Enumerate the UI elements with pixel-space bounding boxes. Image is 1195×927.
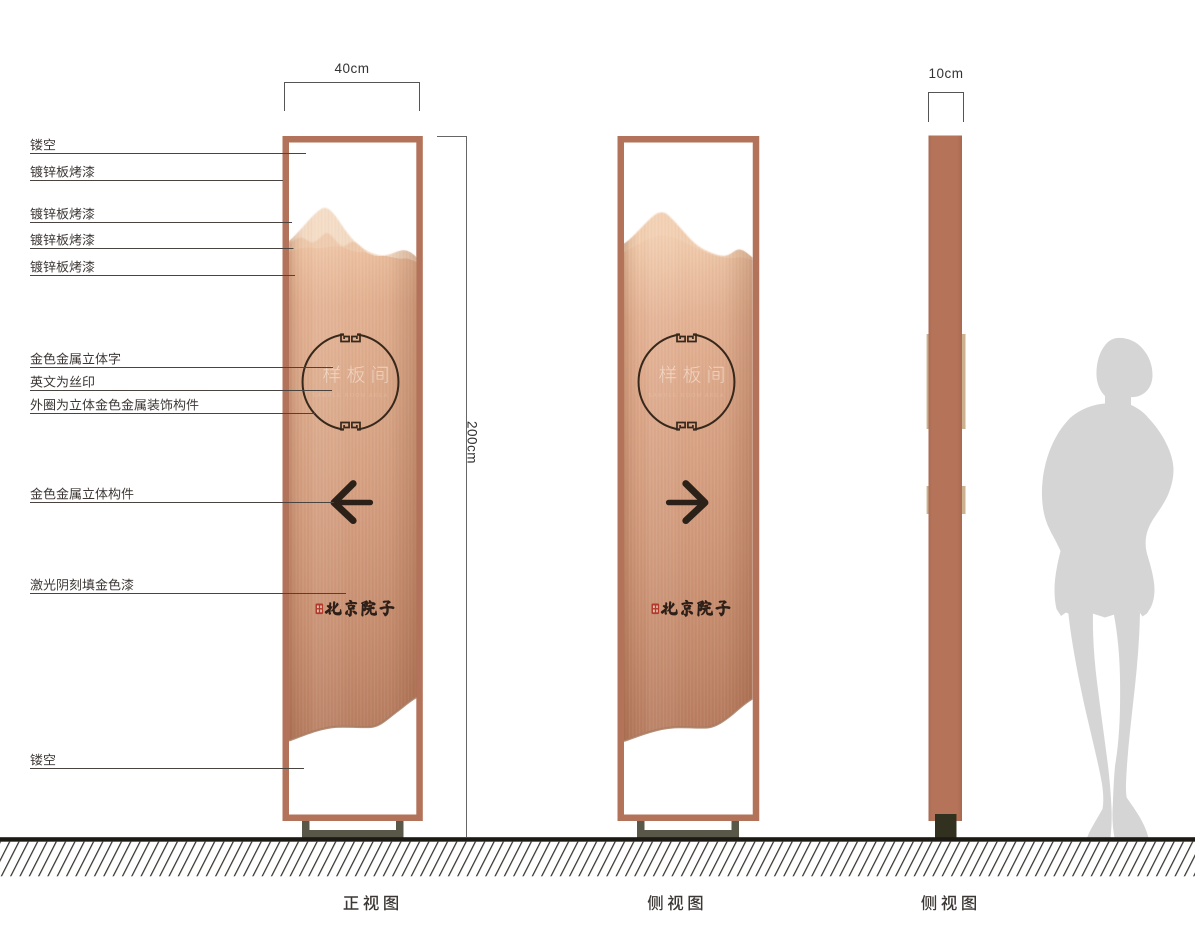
svg-text:SAMPLE ROOM AREA: SAMPLE ROOM AREA xyxy=(312,393,388,399)
svg-text:10cm: 10cm xyxy=(928,66,963,81)
svg-text:40cm: 40cm xyxy=(334,61,369,76)
svg-text:200cm: 200cm xyxy=(465,421,480,464)
svg-text:SAMPLE ROOM AREA: SAMPLE ROOM AREA xyxy=(648,393,724,399)
